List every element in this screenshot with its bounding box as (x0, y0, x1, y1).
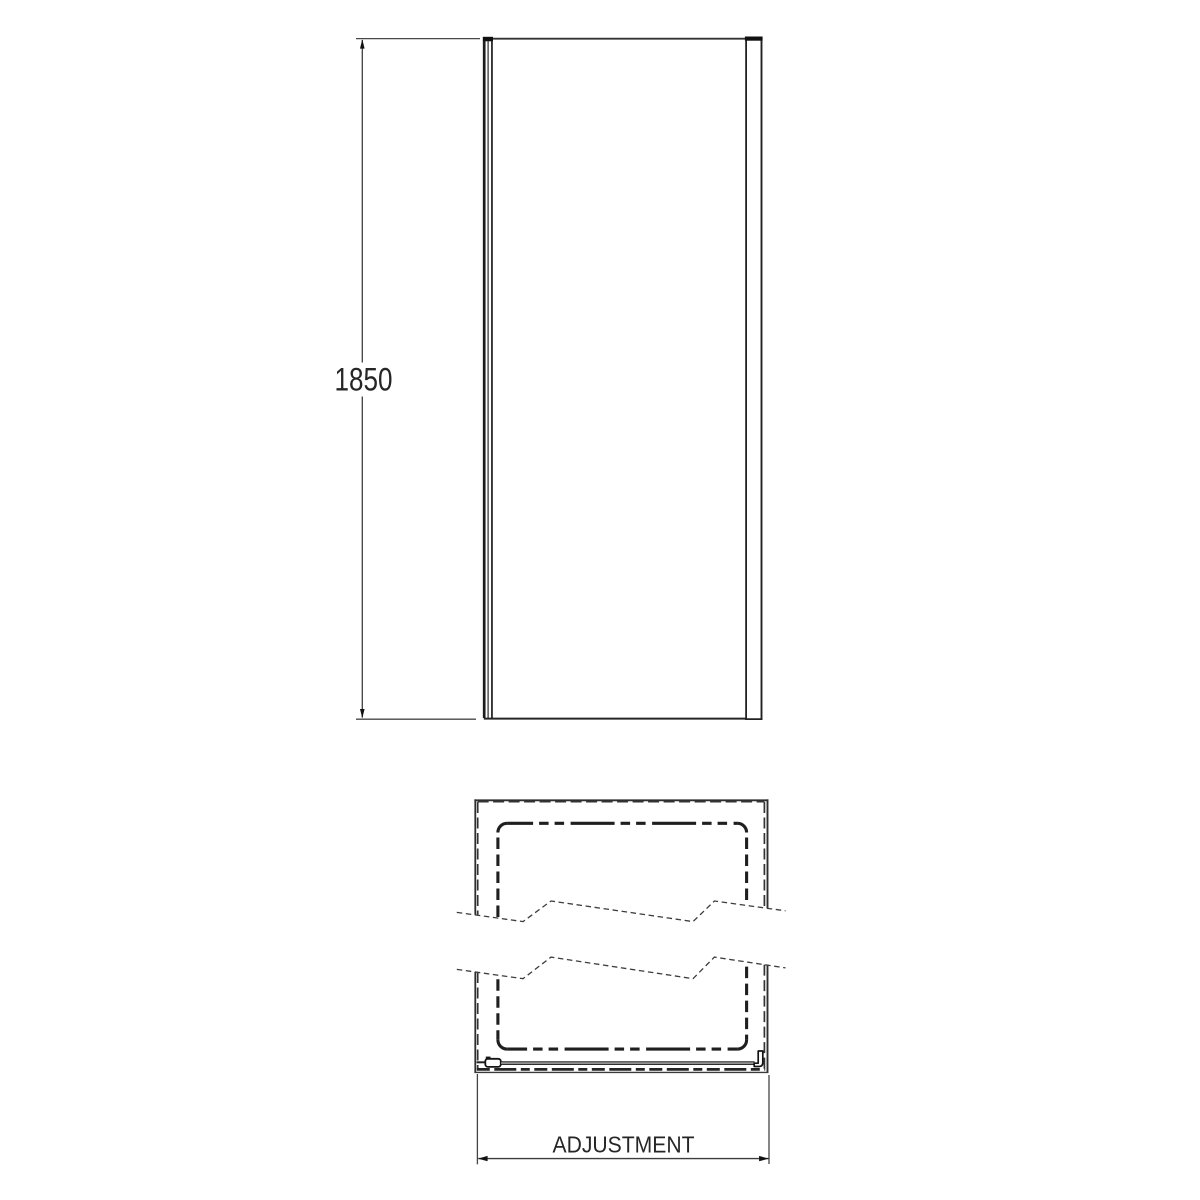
svg-text:ADJUSTMENT: ADJUSTMENT (553, 1131, 695, 1157)
svg-text:1850: 1850 (335, 361, 393, 397)
